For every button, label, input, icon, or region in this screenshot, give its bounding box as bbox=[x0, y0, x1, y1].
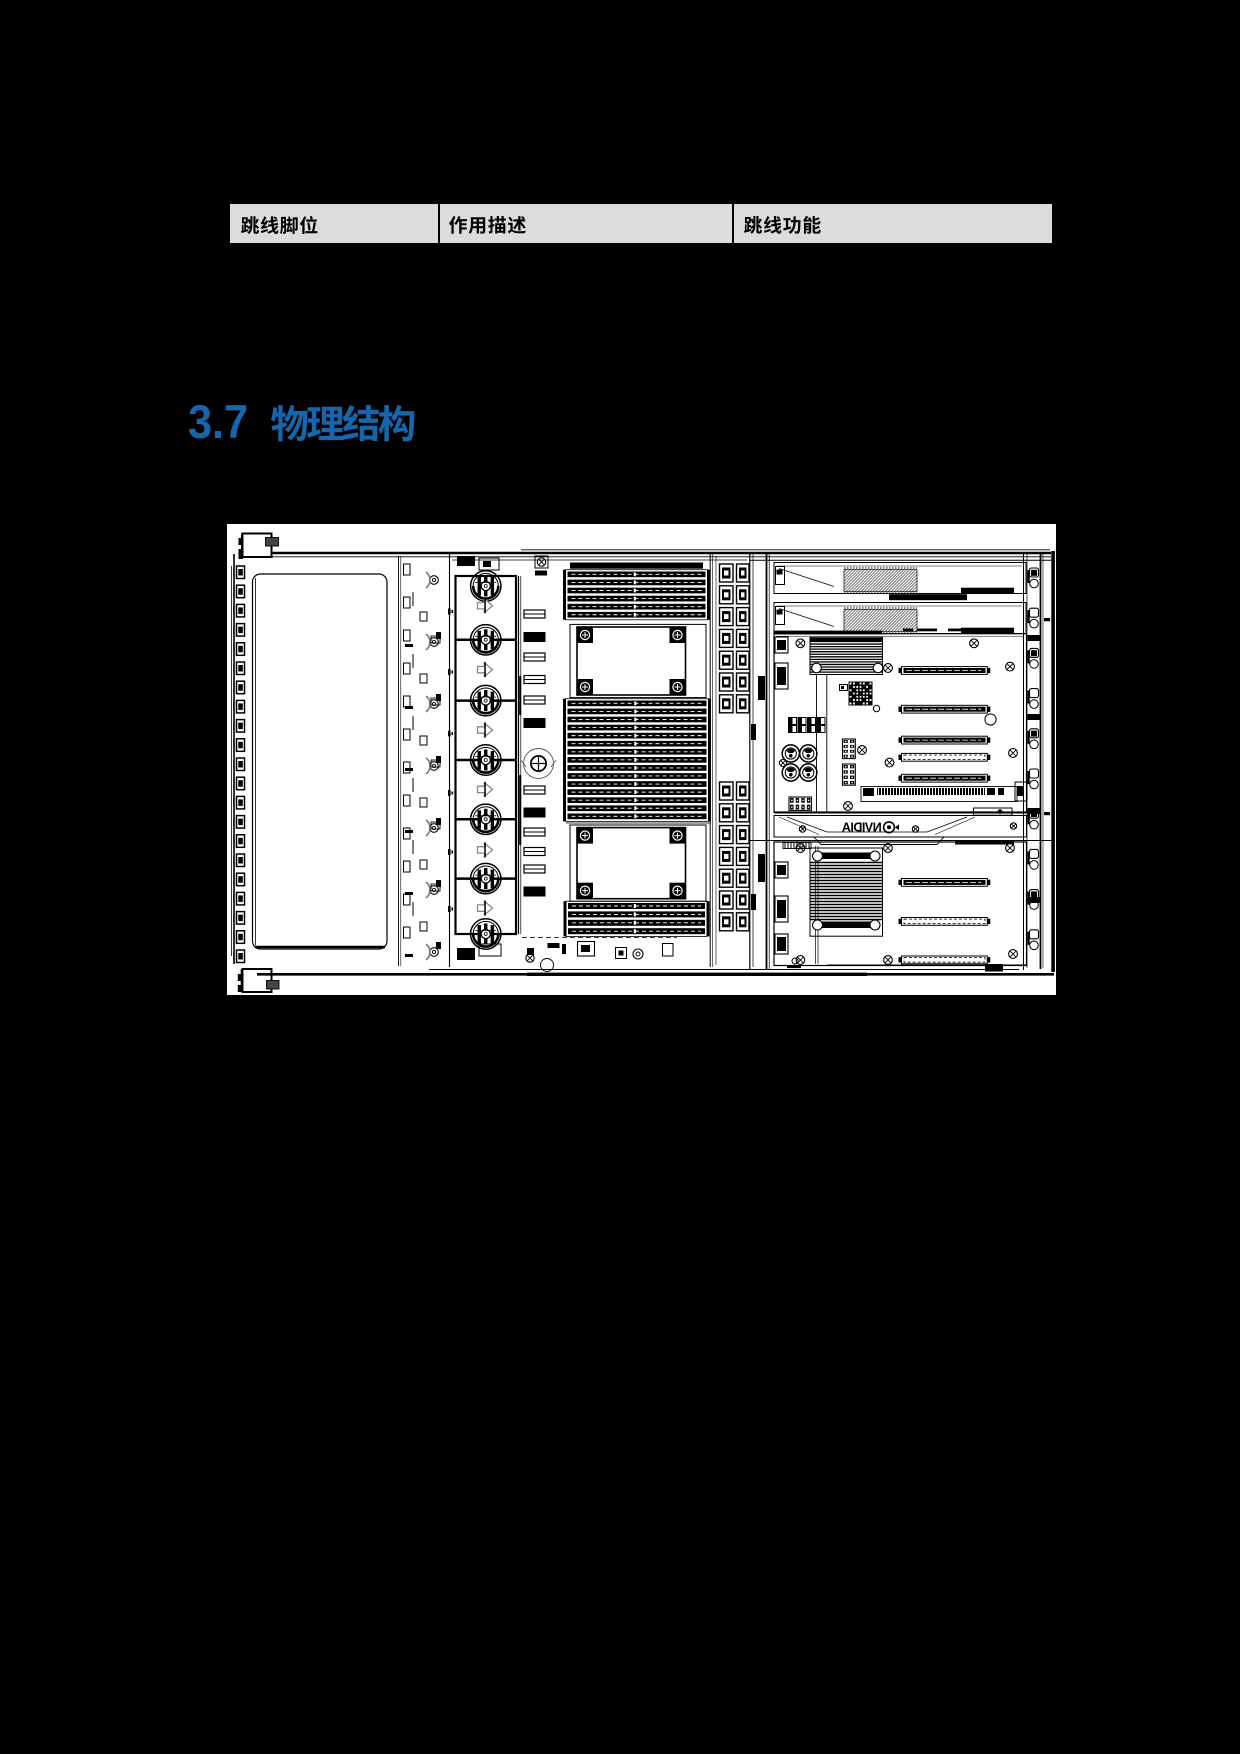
svg-text:NVIDIA: NVIDIA bbox=[842, 821, 882, 835]
